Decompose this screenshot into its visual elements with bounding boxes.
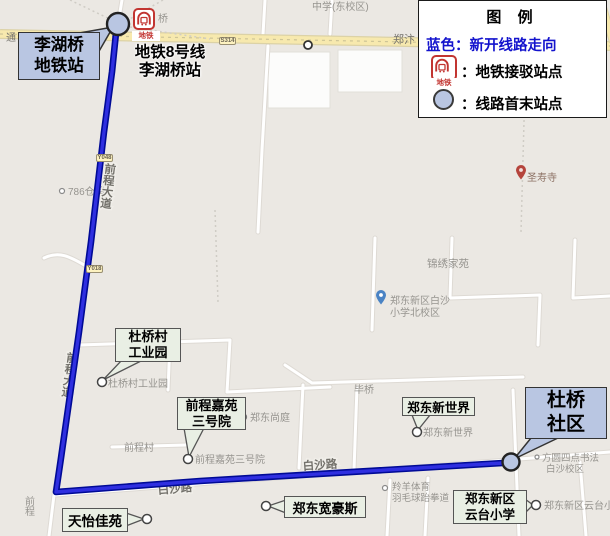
route-start-terminal-circle: [107, 13, 129, 35]
callout-zdnw-label: 郑东新世界: [407, 397, 470, 416]
callout-zhengdong-new-world: 郑东新世界: [402, 397, 475, 416]
callout-lihuqiao-line2: 地铁站: [34, 56, 84, 77]
callout-qcjy-line1: 前程嘉苑: [185, 398, 237, 414]
label-zhengbian-road: 郑汴: [393, 32, 415, 46]
poi-ring-786: [60, 189, 65, 194]
poi-ring-yuntai: [532, 501, 541, 510]
callout-tianyi-label: 天怡佳苑: [68, 510, 122, 530]
legend-terminal-circle-icon: [433, 89, 454, 110]
legend-route-item: 蓝色：新开线路走向: [426, 34, 557, 55]
label-qiancheng-partial: 前程: [23, 495, 35, 516]
temple-pin-icon: [516, 165, 526, 180]
callout-lihuqiao-station: 李湖桥 地铁站: [18, 32, 100, 80]
label-yuntai-poi: 郑东新区云台小学: [544, 499, 610, 512]
label-jinxiu-jiayuan: 锦绣家苑: [427, 257, 469, 270]
metro-logo-icon: 地铁: [133, 8, 155, 30]
label-lingyang-1: 羚羊体育: [392, 481, 430, 493]
callout-yuntai-line1: 郑东新区: [465, 491, 515, 507]
callout-kuanhaosi: 郑东宽豪斯: [284, 496, 366, 518]
callout-duqiaocun-line2: 工业园: [128, 345, 167, 361]
label-fangyuan-1: 方圆四点书法: [542, 452, 599, 464]
legend-metro-icon: 地铁: [431, 55, 457, 81]
callout-duqiao-line2: 社区: [547, 413, 585, 437]
poi-ring-tianyi: [143, 515, 152, 524]
legend-metro-item: ：地铁接驳站点: [461, 61, 563, 82]
legend-metro-tag: 地铁: [430, 78, 458, 88]
poi-ring-duqiaocun: [98, 378, 107, 387]
caption-line-2: 李湖桥站: [124, 62, 216, 80]
poi-ring-new-world: [413, 428, 422, 437]
poi-ring-lingyang: [383, 486, 388, 491]
road-node-circle: [304, 41, 312, 49]
poi-ring-fangyuan: [535, 455, 539, 459]
callout-duqiaocun-industrial: 杜桥村 工业园: [115, 328, 181, 362]
callout-qcjy-line2: 三号院: [192, 414, 231, 430]
callout-tianyi-jiayuan: 天怡佳苑: [62, 508, 128, 532]
building-blocks: [268, 50, 402, 108]
label-baisha-school-1: 郑东新区白沙: [390, 294, 450, 307]
legend-panel: 图 例 蓝色：新开线路走向 地铁 ：地铁接驳站点 ：线路首末站点: [418, 0, 607, 118]
start-station-caption: 地铁8号线 李湖桥站: [124, 44, 216, 79]
legend-title: 图 例: [419, 6, 606, 27]
callout-khs-label: 郑东宽豪斯: [292, 498, 357, 517]
label-biqiao: 毕桥: [354, 383, 374, 396]
callout-qianchengjiayuan: 前程嘉苑 三号院: [177, 397, 246, 430]
poi-ring-qianchengjiayuan: [184, 455, 193, 464]
caption-line-1: 地铁8号线: [124, 44, 216, 62]
label-duqiaocun-poi: 杜桥村工业园: [108, 377, 168, 390]
callout-yuntai-school: 郑东新区 云台小学: [453, 490, 527, 524]
poi-ring-kuanhaosi: [262, 502, 271, 511]
label-qianchengjiayuan-poi: 前程嘉苑三号院: [195, 453, 265, 466]
callout-yuntai-line2: 云台小学: [465, 507, 515, 523]
label-qiao: 桥: [158, 13, 168, 25]
label-fangyuan-2: 白沙校区: [546, 463, 585, 475]
label-zhengdong-new-world-poi: 郑东新世界: [423, 426, 473, 439]
bus-route-map: 中学(东校区) 桥 郑汴 通 786仓储 前程大道 前程大道 前程 杜桥村工业园…: [0, 0, 610, 536]
road-shield-y018: Y018: [86, 265, 103, 273]
school-pin-icon: [376, 290, 386, 305]
callout-duqiao-line1: 杜桥: [547, 389, 585, 413]
road-shield-y048: Y048: [96, 154, 113, 162]
metro-tag-label: 地铁: [132, 31, 160, 41]
label-middle-school: 中学(东校区): [312, 0, 369, 13]
label-baisha-school-2: 小学北校区: [390, 306, 440, 319]
callout-duqiao-community: 杜桥 社区: [525, 387, 607, 439]
legend-terminal-item: ：线路首末站点: [461, 93, 563, 114]
label-tong-partial: 通: [6, 32, 16, 44]
label-lingyang-2: 羽毛球跆拳道: [392, 492, 450, 504]
label-shengshou-temple: 圣寿寺: [527, 171, 557, 184]
road-shield-s314: S314: [219, 37, 236, 45]
callout-duqiaocun-line1: 杜桥村: [128, 329, 167, 345]
callout-lihuqiao-line1: 李湖桥: [34, 35, 84, 56]
route-end-terminal-circle: [503, 454, 520, 471]
label-qianchengcun: 前程村: [124, 441, 154, 454]
label-zhengdong-shangting: 郑东尚庭: [250, 411, 290, 424]
